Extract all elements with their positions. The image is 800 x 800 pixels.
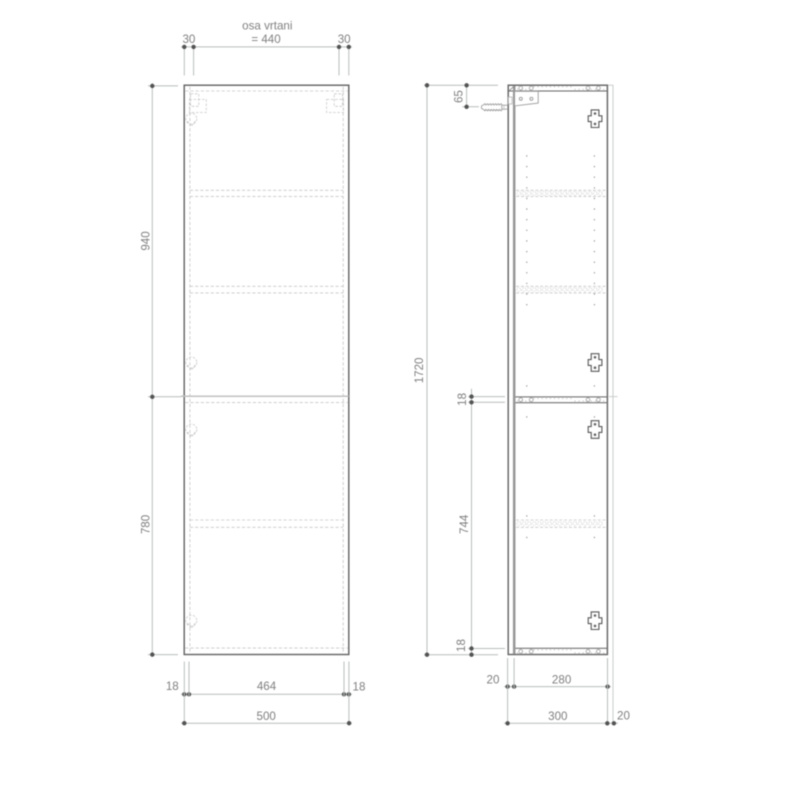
- svg-text:744: 744: [458, 514, 471, 534]
- svg-text:30: 30: [338, 33, 351, 46]
- svg-text:300: 300: [548, 710, 567, 723]
- svg-text:940: 940: [140, 231, 153, 250]
- svg-text:500: 500: [257, 710, 276, 723]
- svg-text:18: 18: [456, 393, 469, 406]
- svg-text:1720: 1720: [413, 358, 426, 384]
- svg-text:18: 18: [353, 680, 366, 693]
- svg-text:464: 464: [257, 680, 277, 693]
- svg-text:30: 30: [182, 33, 195, 46]
- svg-text:280: 280: [552, 674, 571, 687]
- svg-text:65: 65: [453, 90, 466, 103]
- svg-text:= 440: = 440: [251, 33, 280, 46]
- svg-text:20: 20: [487, 674, 500, 687]
- svg-text:osa vrtani: osa vrtani: [242, 20, 292, 33]
- svg-text:18: 18: [455, 639, 468, 652]
- svg-text:780: 780: [140, 515, 153, 534]
- svg-text:18: 18: [166, 680, 179, 693]
- svg-text:20: 20: [617, 709, 630, 722]
